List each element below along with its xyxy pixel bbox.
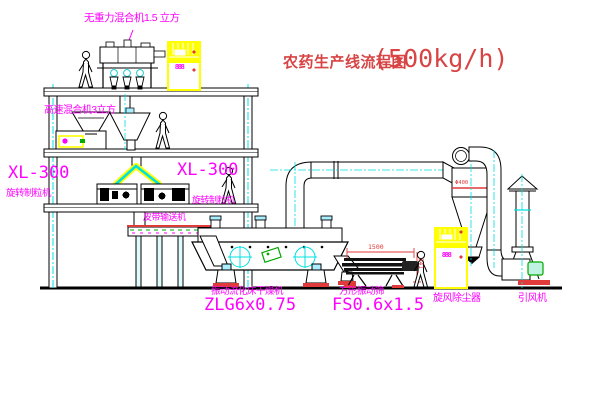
platform-legs xyxy=(136,236,183,287)
sieve-motor xyxy=(402,261,418,271)
granulator-feed-pipes xyxy=(116,157,159,184)
label-granulator-left-name: 旋转制粒机 xyxy=(6,189,51,199)
label-granulator-mid-name: 旋转制粒机 xyxy=(192,196,235,205)
label-granulator-left-model: XL-300 xyxy=(8,165,69,182)
granulator-right xyxy=(141,184,189,204)
label-belt-conveyor: 皮带输送机 xyxy=(143,213,186,222)
capacity-annotation: (500kg/h) xyxy=(373,44,508,73)
control-cabinet-right xyxy=(435,228,467,288)
person-figure xyxy=(79,51,93,87)
dimension-cyclone-diameter: Φ400 xyxy=(455,180,468,186)
cabinet-display-readout: 888 xyxy=(175,64,184,71)
control-cabinet-top xyxy=(168,42,200,90)
pesticide-line-flow-diagram: 农药生产线流程图 (500kg/h) 无重力混合机1.5 立方 高速混合机3立方… xyxy=(0,0,600,403)
gravity-free-mixer xyxy=(97,30,165,89)
person-figure xyxy=(156,112,170,148)
fan-motor xyxy=(528,262,543,275)
high-speed-mixer xyxy=(56,94,150,150)
label-fan: 引风机 xyxy=(518,294,547,304)
induced-draft-fan xyxy=(502,174,550,288)
cabinet-display-readout: 888 xyxy=(442,252,451,259)
label-gravity-free-mixer: 无重力混合机1.5 立方 xyxy=(84,13,180,24)
label-cyclone: 旋风除尘器 xyxy=(433,294,481,304)
granulator-left xyxy=(97,184,137,204)
label-high-speed-mixer: 高速混合机3立方 xyxy=(44,106,116,116)
label-dryer-model: ZLG6x0.75 xyxy=(204,297,296,314)
dimension-sieve-height: 541 xyxy=(417,258,424,269)
label-granulator-mid-model: XL-300 xyxy=(177,162,238,179)
dimension-sieve-length: 1500 xyxy=(368,243,384,251)
label-sieve-model: FS0.6x1.5 xyxy=(332,297,424,314)
